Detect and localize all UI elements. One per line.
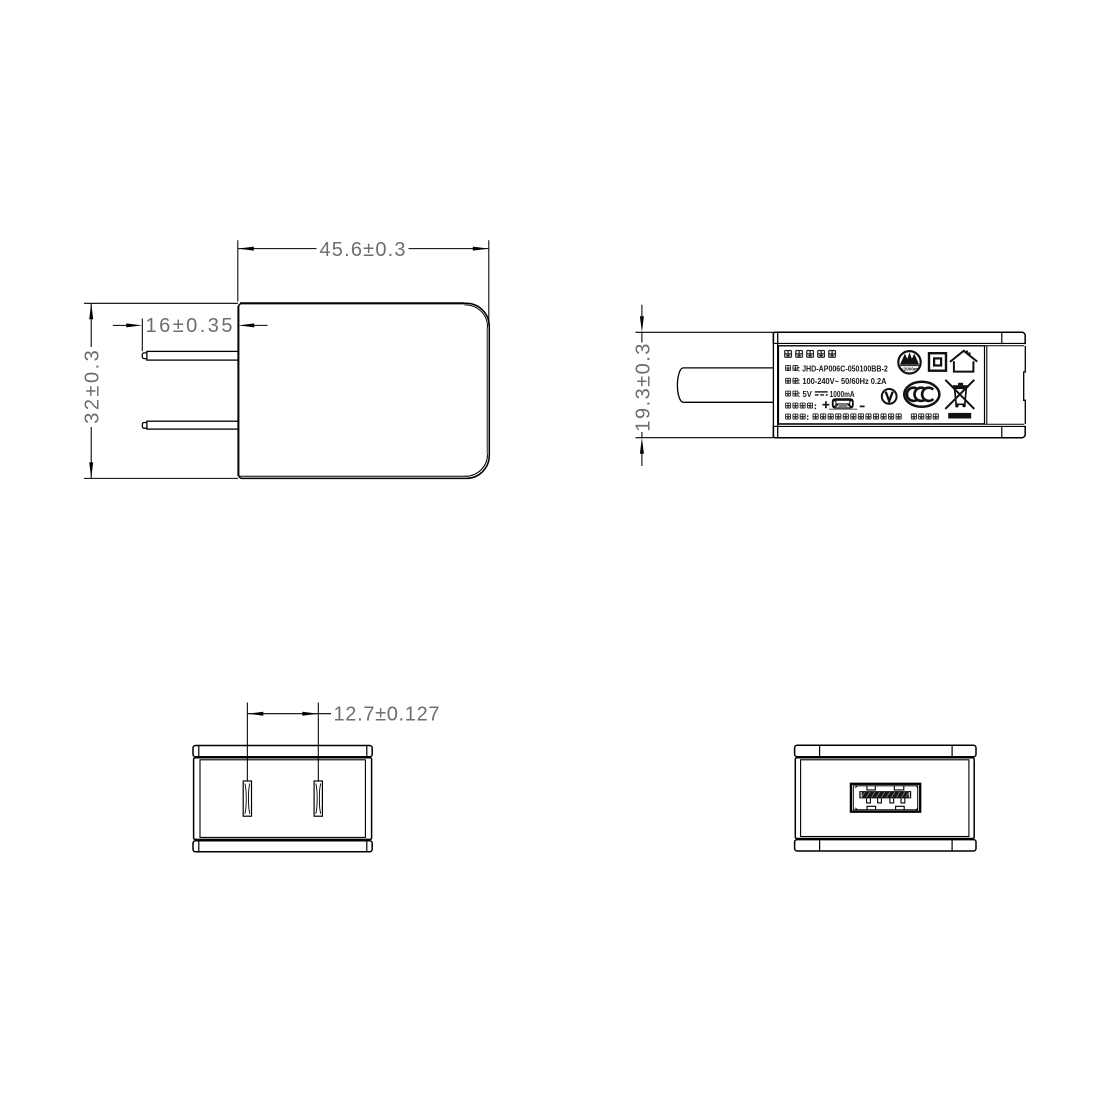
svg-text:12.7±0.127: 12.7±0.127	[334, 703, 440, 725]
svg-text:19.3±0.3: 19.3±0.3	[633, 344, 655, 432]
svg-text:16±0.35: 16±0.35	[146, 315, 233, 337]
svg-text:: 100-240V~ 50/60Hz 0.2A: : 100-240V~ 50/60Hz 0.2A	[798, 377, 887, 386]
svg-text:≤2000m: ≤2000m	[901, 367, 918, 372]
svg-text:: JHD-AP006C-050100BB-2: : JHD-AP006C-050100BB-2	[798, 364, 888, 373]
svg-text:1000mA: 1000mA	[830, 390, 855, 399]
svg-text:32±0.3: 32±0.3	[82, 350, 104, 424]
svg-text:: 5V: : 5V	[798, 390, 813, 399]
svg-text:45.6±0.3: 45.6±0.3	[320, 239, 406, 261]
